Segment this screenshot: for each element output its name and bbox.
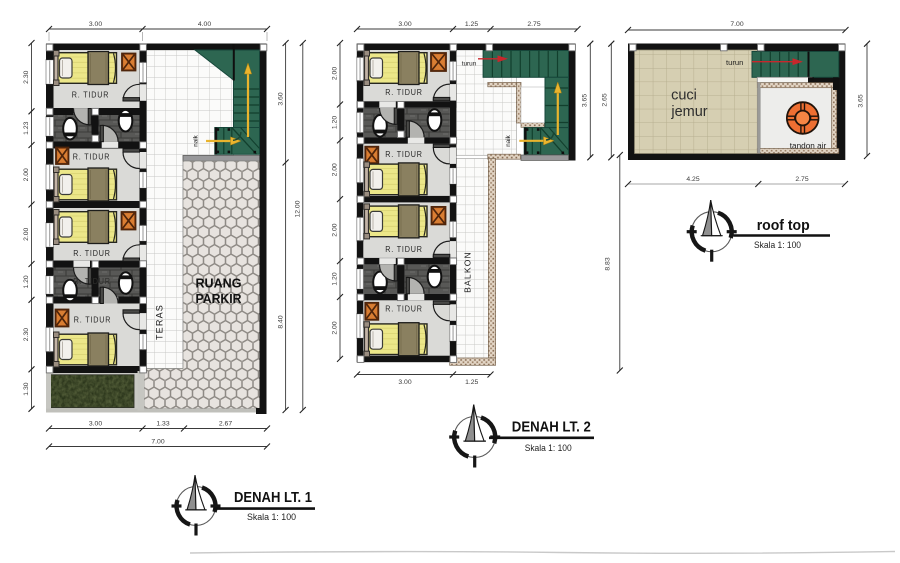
svg-text:turun: turun xyxy=(462,60,477,67)
svg-text:7.00: 7.00 xyxy=(151,439,164,446)
svg-text:1.25: 1.25 xyxy=(465,21,478,28)
svg-text:R. TIDUR: R. TIDUR xyxy=(73,153,111,162)
svg-text:3.00: 3.00 xyxy=(398,379,411,386)
svg-text:PARKIR: PARKIR xyxy=(196,291,243,306)
svg-text:R. TIDUR: R. TIDUR xyxy=(385,245,423,254)
svg-text:4.25: 4.25 xyxy=(686,176,699,183)
svg-text:8.83: 8.83 xyxy=(605,257,612,270)
svg-text:R. TIDUR: R. TIDUR xyxy=(73,277,111,286)
svg-text:2.75: 2.75 xyxy=(527,21,540,28)
svg-text:R. TIDUR: R. TIDUR xyxy=(73,249,111,258)
svg-text:2.30: 2.30 xyxy=(23,328,30,341)
svg-text:cuci: cuci xyxy=(671,88,697,104)
svg-text:3.65: 3.65 xyxy=(582,94,589,107)
svg-text:8.40: 8.40 xyxy=(278,315,285,328)
svg-text:R. TIDUR: R. TIDUR xyxy=(385,88,423,97)
svg-text:1.20: 1.20 xyxy=(23,275,30,288)
svg-text:BALKON: BALKON xyxy=(463,251,473,293)
svg-text:R. TIDUR: R. TIDUR xyxy=(385,150,423,159)
svg-text:1.23: 1.23 xyxy=(23,121,30,134)
svg-text:2.00: 2.00 xyxy=(332,67,339,80)
svg-text:2.00: 2.00 xyxy=(332,321,339,334)
svg-text:1.33: 1.33 xyxy=(156,421,169,428)
svg-text:naik: naik xyxy=(505,134,512,146)
svg-text:3.00: 3.00 xyxy=(89,421,102,428)
svg-text:Skala 1: 100: Skala 1: 100 xyxy=(754,240,801,250)
svg-text:2.67: 2.67 xyxy=(219,421,232,428)
svg-text:2.00: 2.00 xyxy=(23,227,30,240)
svg-text:R. TIDUR: R. TIDUR xyxy=(385,305,423,314)
svg-text:3.00: 3.00 xyxy=(89,21,102,28)
svg-text:Skala 1: 100: Skala 1: 100 xyxy=(247,512,296,522)
svg-text:DENAH LT. 1: DENAH LT. 1 xyxy=(234,490,312,506)
svg-text:RUANG: RUANG xyxy=(196,276,242,291)
svg-text:2.30: 2.30 xyxy=(23,70,30,83)
svg-text:1.25: 1.25 xyxy=(465,379,478,386)
svg-text:TERAS: TERAS xyxy=(155,304,165,340)
svg-text:R. TIDUR: R. TIDUR xyxy=(74,316,112,325)
svg-text:3.60: 3.60 xyxy=(278,92,285,105)
svg-text:2.75: 2.75 xyxy=(795,176,808,183)
svg-text:1.20: 1.20 xyxy=(332,116,339,129)
svg-text:2.00: 2.00 xyxy=(332,223,339,236)
svg-text:1.30: 1.30 xyxy=(23,382,30,395)
svg-text:3.65: 3.65 xyxy=(858,94,865,107)
svg-text:tandon air: tandon air xyxy=(790,141,827,150)
svg-text:turun: turun xyxy=(726,58,743,67)
svg-text:naik: naik xyxy=(193,134,200,146)
svg-text:2.65: 2.65 xyxy=(602,93,609,106)
svg-text:R. TIDUR: R. TIDUR xyxy=(72,91,110,100)
svg-text:4.00: 4.00 xyxy=(198,21,211,28)
svg-text:Skala 1: 100: Skala 1: 100 xyxy=(525,443,572,453)
svg-text:12.00: 12.00 xyxy=(295,200,302,217)
svg-text:jemur: jemur xyxy=(670,104,707,120)
svg-text:7.00: 7.00 xyxy=(730,21,743,28)
svg-text:3.00: 3.00 xyxy=(398,21,411,28)
svg-text:roof top: roof top xyxy=(757,218,810,234)
svg-text:2.00: 2.00 xyxy=(332,163,339,176)
svg-text:DENAH LT. 2: DENAH LT. 2 xyxy=(512,420,591,436)
svg-text:1.20: 1.20 xyxy=(332,272,339,285)
svg-text:2.00: 2.00 xyxy=(23,168,30,181)
